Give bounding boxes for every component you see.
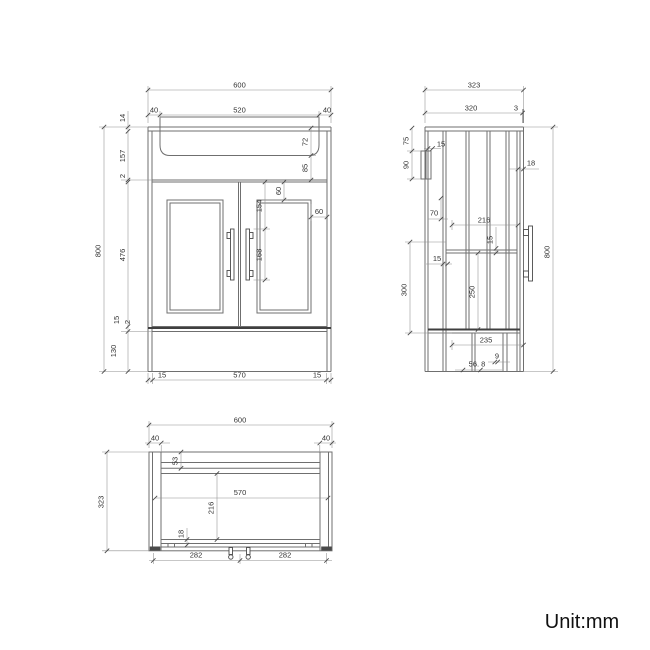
dim-label: 216: [478, 216, 491, 225]
dim-label: 40: [150, 106, 158, 115]
dim-label: 800: [94, 245, 103, 258]
dim-label: 250: [468, 286, 477, 299]
unit-label: Unit:mm: [545, 611, 619, 633]
dim-label: 14: [118, 114, 127, 122]
dim-label: 216: [207, 502, 216, 515]
dim-label: 85: [301, 164, 310, 172]
dim-label: 154: [255, 200, 264, 213]
dim-label: 2: [123, 320, 132, 324]
dim-label: 600: [233, 81, 246, 90]
dim-label: 40: [323, 106, 331, 115]
dim-label: 15: [437, 140, 445, 149]
dim-label: 56. 8: [469, 360, 486, 369]
dim-label: 323: [468, 81, 481, 90]
dim-label: 15: [433, 254, 441, 263]
dim-label: 570: [233, 371, 246, 380]
dim-label: 40: [151, 434, 159, 443]
dim-label: 2: [118, 174, 127, 178]
dim-label: 60: [274, 187, 283, 195]
dim-label: 15: [158, 371, 166, 380]
dim-label: 235: [480, 336, 493, 345]
dim-label: 75: [402, 137, 411, 145]
dim-label: 40: [322, 434, 330, 443]
dim-label: 476: [118, 249, 127, 262]
dim-label: 15: [313, 371, 321, 380]
dim-label: 3: [514, 104, 518, 113]
dim-label: 15: [486, 236, 495, 244]
dim-label: 282: [279, 551, 292, 560]
dim-label: 15: [112, 316, 121, 324]
drawing-background: [0, 0, 650, 650]
dim-label: 130: [109, 345, 118, 358]
dim-label: 72: [301, 138, 310, 146]
dim-label: 600: [234, 416, 247, 425]
dim-label: 90: [402, 161, 411, 169]
dim-label: 18: [527, 159, 535, 168]
dim-label: 323: [97, 496, 106, 509]
plan-left-foot: [150, 547, 161, 551]
dim-label: 282: [190, 551, 203, 560]
dim-label: 300: [400, 284, 409, 297]
plan-right-foot: [321, 547, 332, 551]
dim-label: 18: [177, 530, 186, 538]
dim-label: 168: [255, 249, 264, 262]
dim-label: 570: [234, 488, 247, 497]
technical-drawing-canvas: 600 40 520 40 14 157 2 476 15 2 130 800 …: [0, 0, 650, 650]
dim-label: 520: [233, 106, 246, 115]
dim-label: 320: [465, 104, 478, 113]
dim-label: 157: [118, 150, 127, 163]
dim-label: 9: [495, 352, 499, 361]
dim-label: 53: [171, 457, 180, 465]
dim-label: 70: [430, 209, 438, 218]
dim-label: 60: [315, 207, 323, 216]
dim-label: 800: [543, 246, 552, 259]
